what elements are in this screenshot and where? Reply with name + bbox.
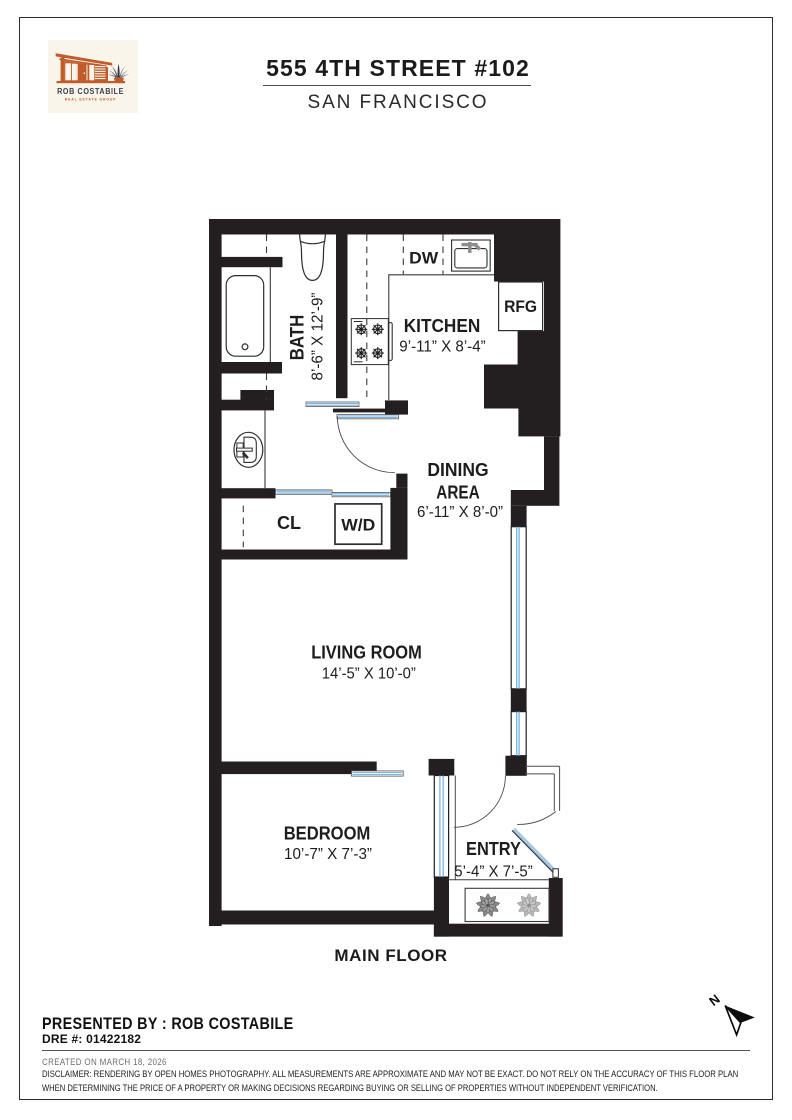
svg-text:AREA: AREA [436,483,480,503]
svg-text:W/D: W/D [341,517,375,535]
svg-text:10’-7” X 7’-3”: 10’-7” X 7’-3” [284,846,372,863]
svg-text:DINING: DINING [427,460,488,480]
svg-text:9’-11” X 8’-4”: 9’-11” X 8’-4” [399,339,485,356]
svg-text:N: N [706,991,723,1009]
svg-text:DW: DW [409,250,438,268]
svg-text:6’-11” X 8’-0”: 6’-11” X 8’-0” [417,504,503,521]
svg-text:BATH: BATH [287,315,309,361]
svg-text:ROB COSTABILE: ROB COSTABILE [57,87,124,96]
svg-text:BEDROOM: BEDROOM [284,824,371,844]
svg-text:RFG: RFG [504,298,537,316]
svg-text:14’-5” X 10’-0”: 14’-5” X 10’-0” [322,666,416,683]
svg-text:5’-4” X 7’-5”: 5’-4” X 7’-5” [454,864,532,881]
svg-text:ENTRY: ENTRY [466,839,521,859]
svg-text:CL: CL [277,513,301,533]
svg-text:LIVING ROOM: LIVING ROOM [311,643,422,663]
svg-text:KITCHEN: KITCHEN [404,316,481,336]
svg-text:REAL ESTATE GROUP: REAL ESTATE GROUP [65,98,117,102]
svg-text:8’-6” X 12’-9”: 8’-6” X 12’-9” [310,293,327,381]
